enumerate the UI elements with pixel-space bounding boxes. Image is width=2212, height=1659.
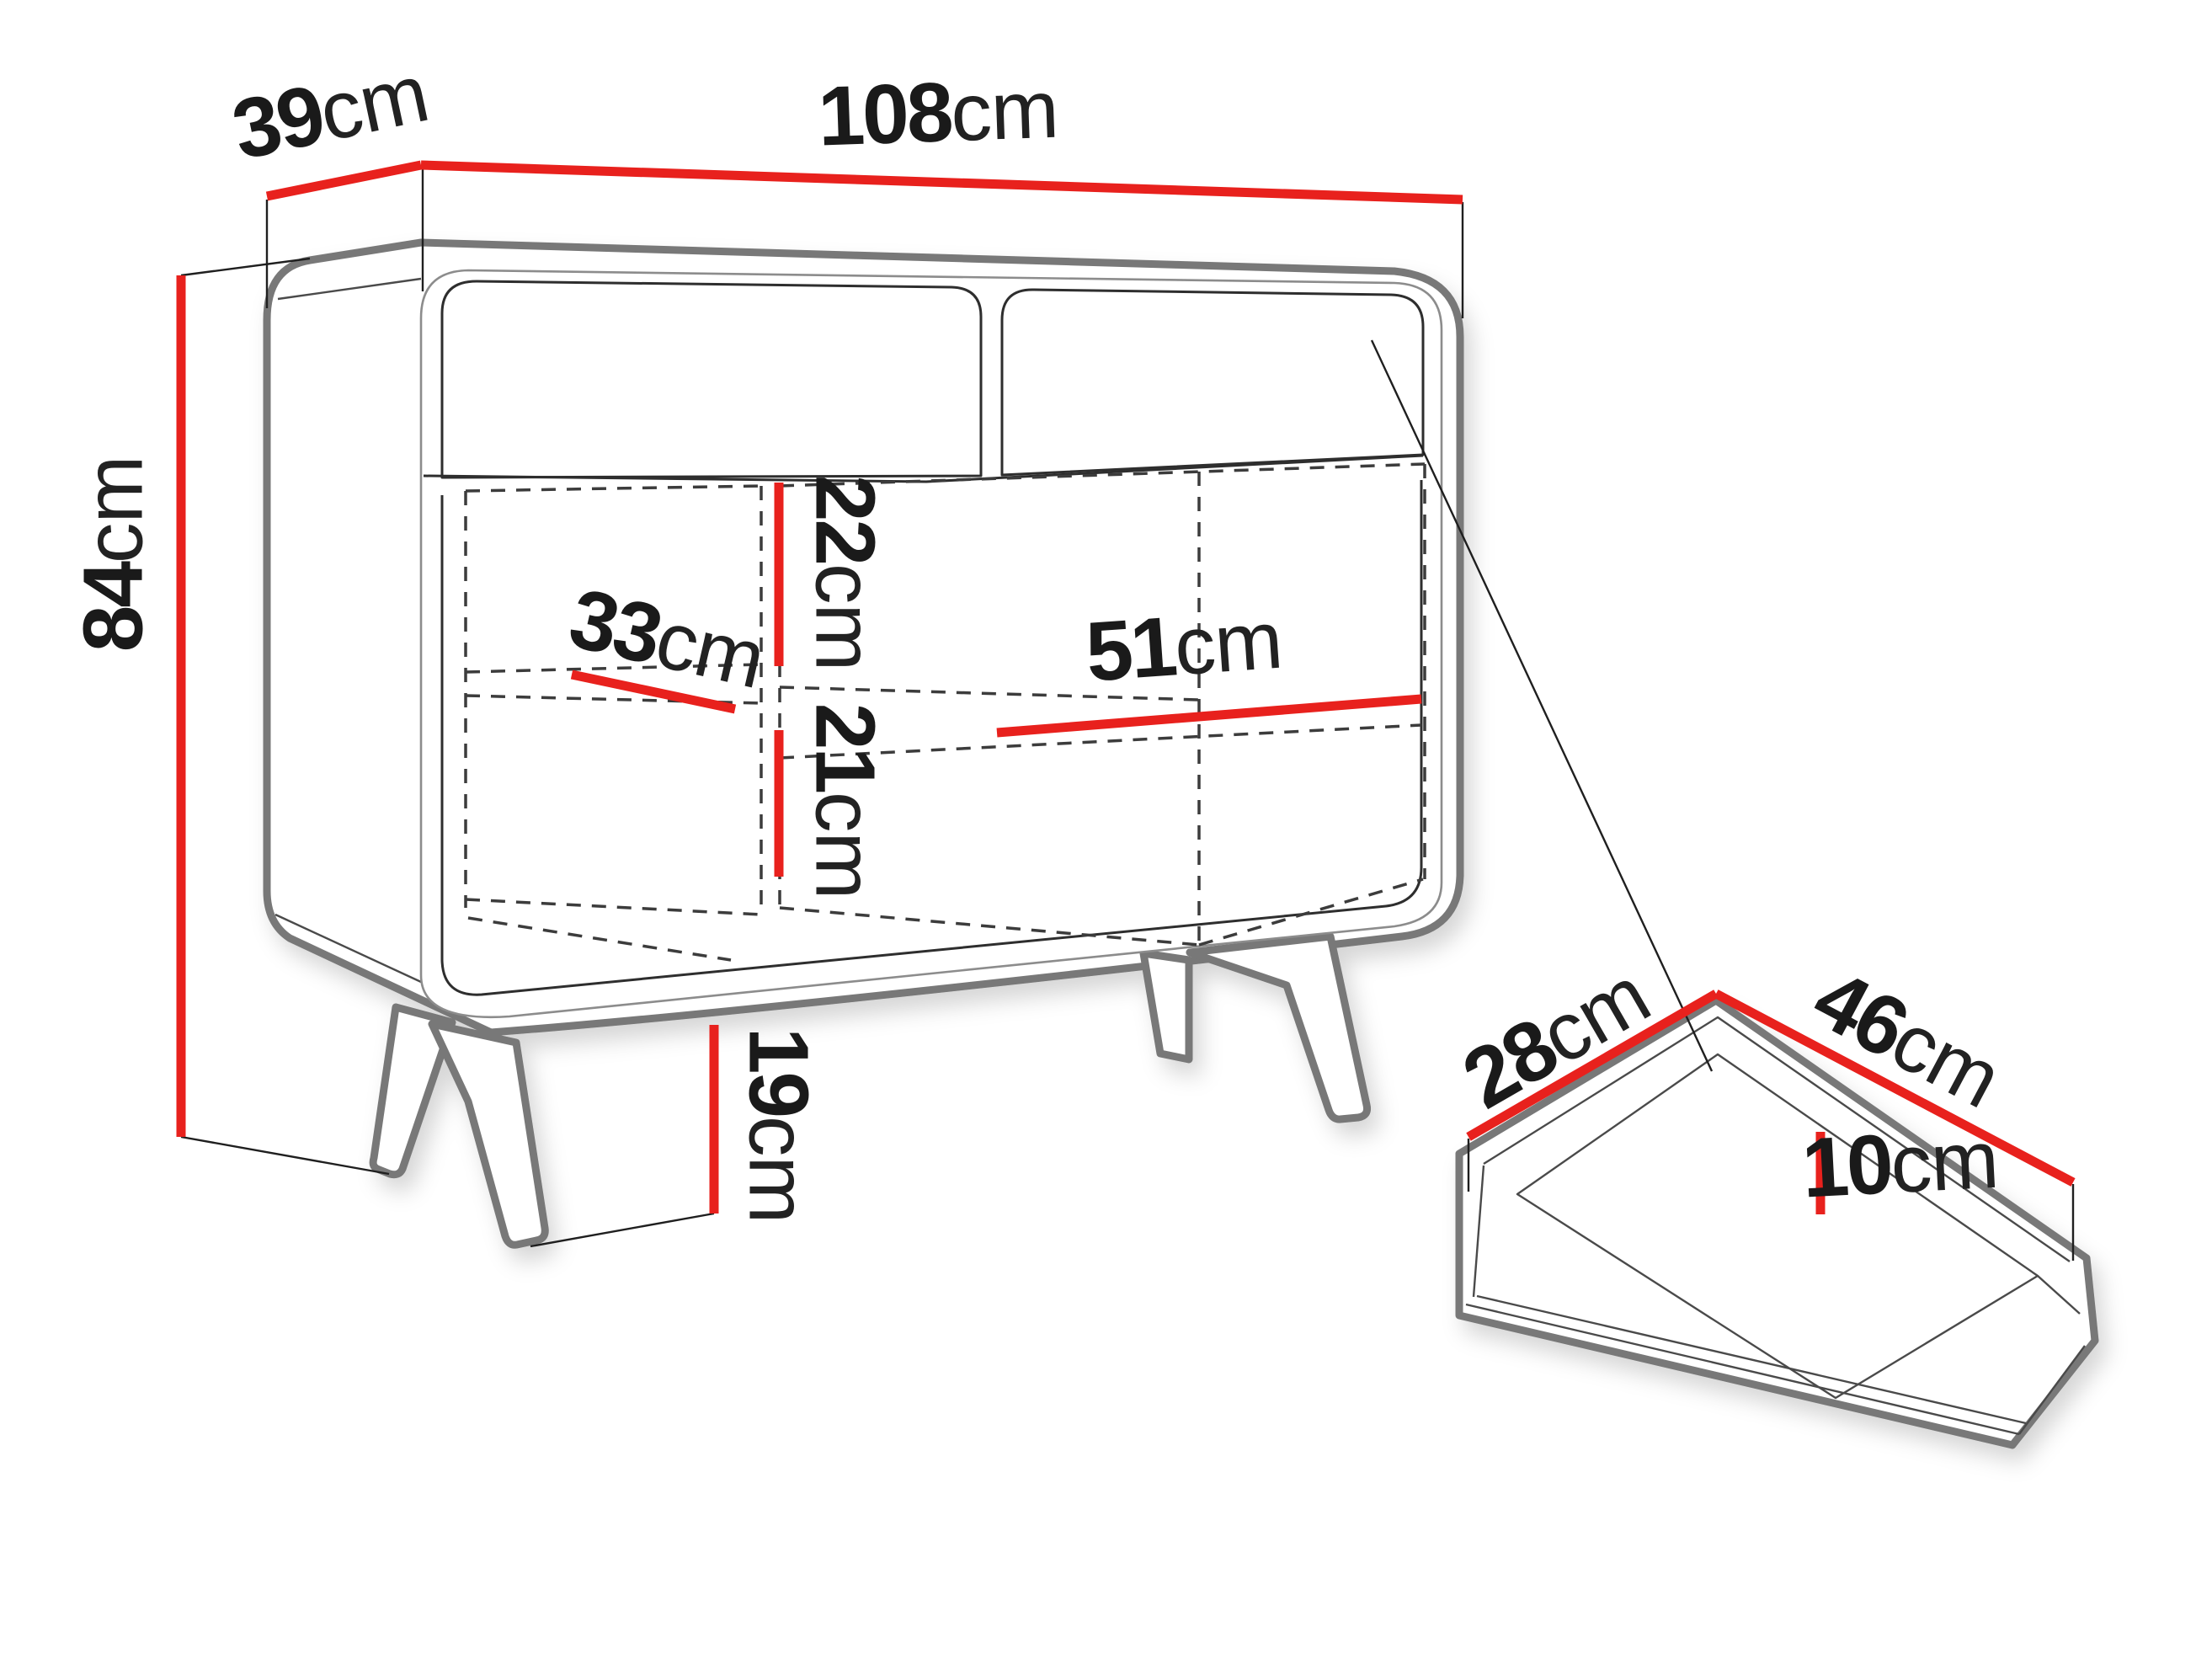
dimension-diagram: 39cm 108cm 84cm 22cm 33cm 51cm 21cm 19cm…	[0, 0, 2212, 1659]
dim-label-width: 108cm	[817, 61, 1060, 164]
ext-leg-height	[530, 1214, 714, 1246]
dim-label-drawer-height: 10cm	[1799, 1112, 2000, 1216]
dim-label-upper-niche: 22cm	[797, 475, 892, 671]
dim-label-depth: 39cm	[225, 45, 436, 178]
cabinet-leg-back-right	[1143, 953, 1189, 1059]
cabinet-leg-back-left	[432, 1024, 545, 1245]
dim-line-depth-39	[267, 165, 421, 196]
dim-label-height: 84cm	[67, 456, 161, 653]
dim-label-lower-niche: 21cm	[797, 703, 892, 899]
dim-line-width-108	[421, 165, 1463, 200]
ext-height-bottom	[181, 1137, 389, 1174]
cabinet-leg-front-right	[1190, 936, 1367, 1119]
dim-label-niche-width: 51cm	[1083, 592, 1285, 700]
dim-label-leg-height: 19cm	[731, 1027, 825, 1224]
